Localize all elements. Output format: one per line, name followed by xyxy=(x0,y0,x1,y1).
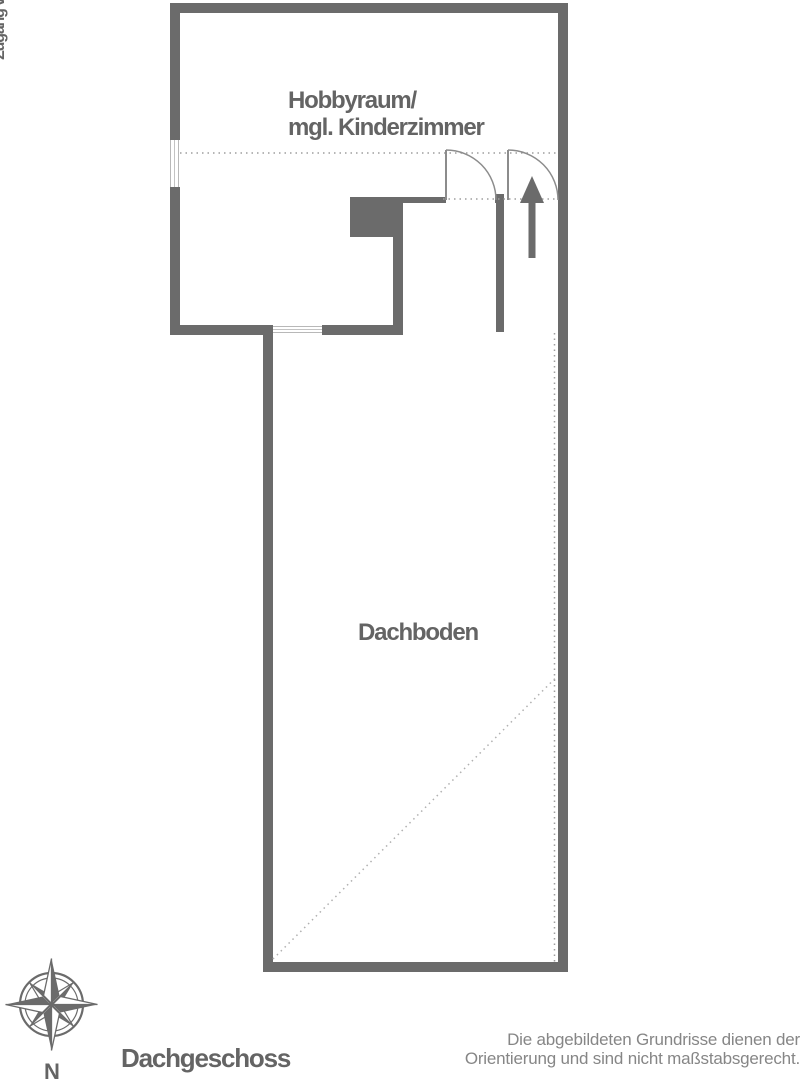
room-label-hobbyraum: Hobbyraum/ mgl. Kinderzimmer xyxy=(288,88,484,141)
floor-plan-page: Hobbyraum/ mgl. Kinderzimmer Dachboden Z… xyxy=(0,0,801,1080)
dotted-line-roof-slope-diagonal xyxy=(273,678,556,959)
floor-title: Dachgeschoss xyxy=(121,1043,290,1074)
disclaimer-line1: Die abgebildeten Grundrisse dienen der xyxy=(465,1030,800,1049)
access-label: Zugang vom 1.OG xyxy=(0,0,8,60)
room-label-dachboden: Dachboden xyxy=(298,620,538,647)
room-label-line2: mgl. Kinderzimmer xyxy=(288,115,484,142)
plan-linework xyxy=(0,0,801,1080)
disclaimer-text: Die abgebildeten Grundrisse dienen der O… xyxy=(465,1030,800,1068)
compass-north-label: N xyxy=(36,1059,68,1080)
disclaimer-line2: Orientierung und sind nicht maßstabsgere… xyxy=(465,1049,800,1068)
room-label-line1: Hobbyraum/ xyxy=(288,88,484,115)
door-swing-arc-1 xyxy=(446,150,496,200)
compass-rose-icon xyxy=(4,957,99,1052)
access-arrow-icon xyxy=(520,176,544,258)
